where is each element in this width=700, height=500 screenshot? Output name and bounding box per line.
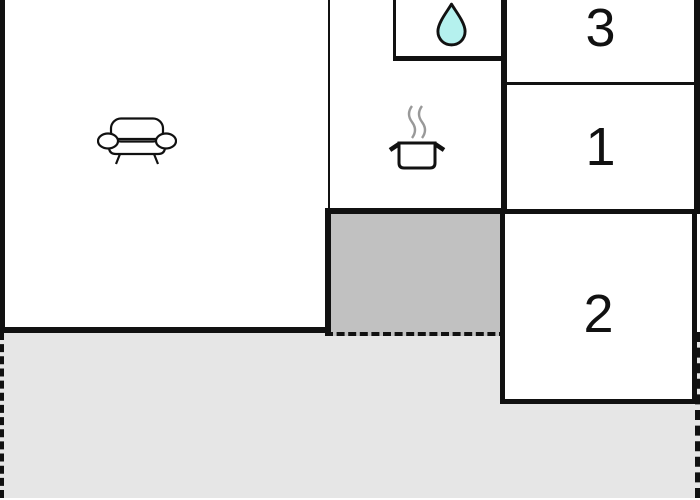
room-living [0, 0, 330, 333]
room-1: 1 [507, 85, 694, 209]
water-drop-icon [435, 2, 468, 47]
room-3-label: 3 [585, 0, 615, 56]
room-2: 2 [500, 209, 697, 404]
wall-outer-right [694, 0, 700, 214]
sofa-icon [97, 117, 177, 166]
cooking-pot-icon [388, 103, 446, 171]
floor-plan: 3 1 2 [0, 0, 700, 500]
room-bathroom [393, 0, 508, 61]
room-3: 3 [507, 0, 694, 82]
room-1-label: 1 [585, 119, 615, 175]
inner-courtyard-area [325, 208, 507, 336]
room-2-label: 2 [583, 286, 613, 342]
